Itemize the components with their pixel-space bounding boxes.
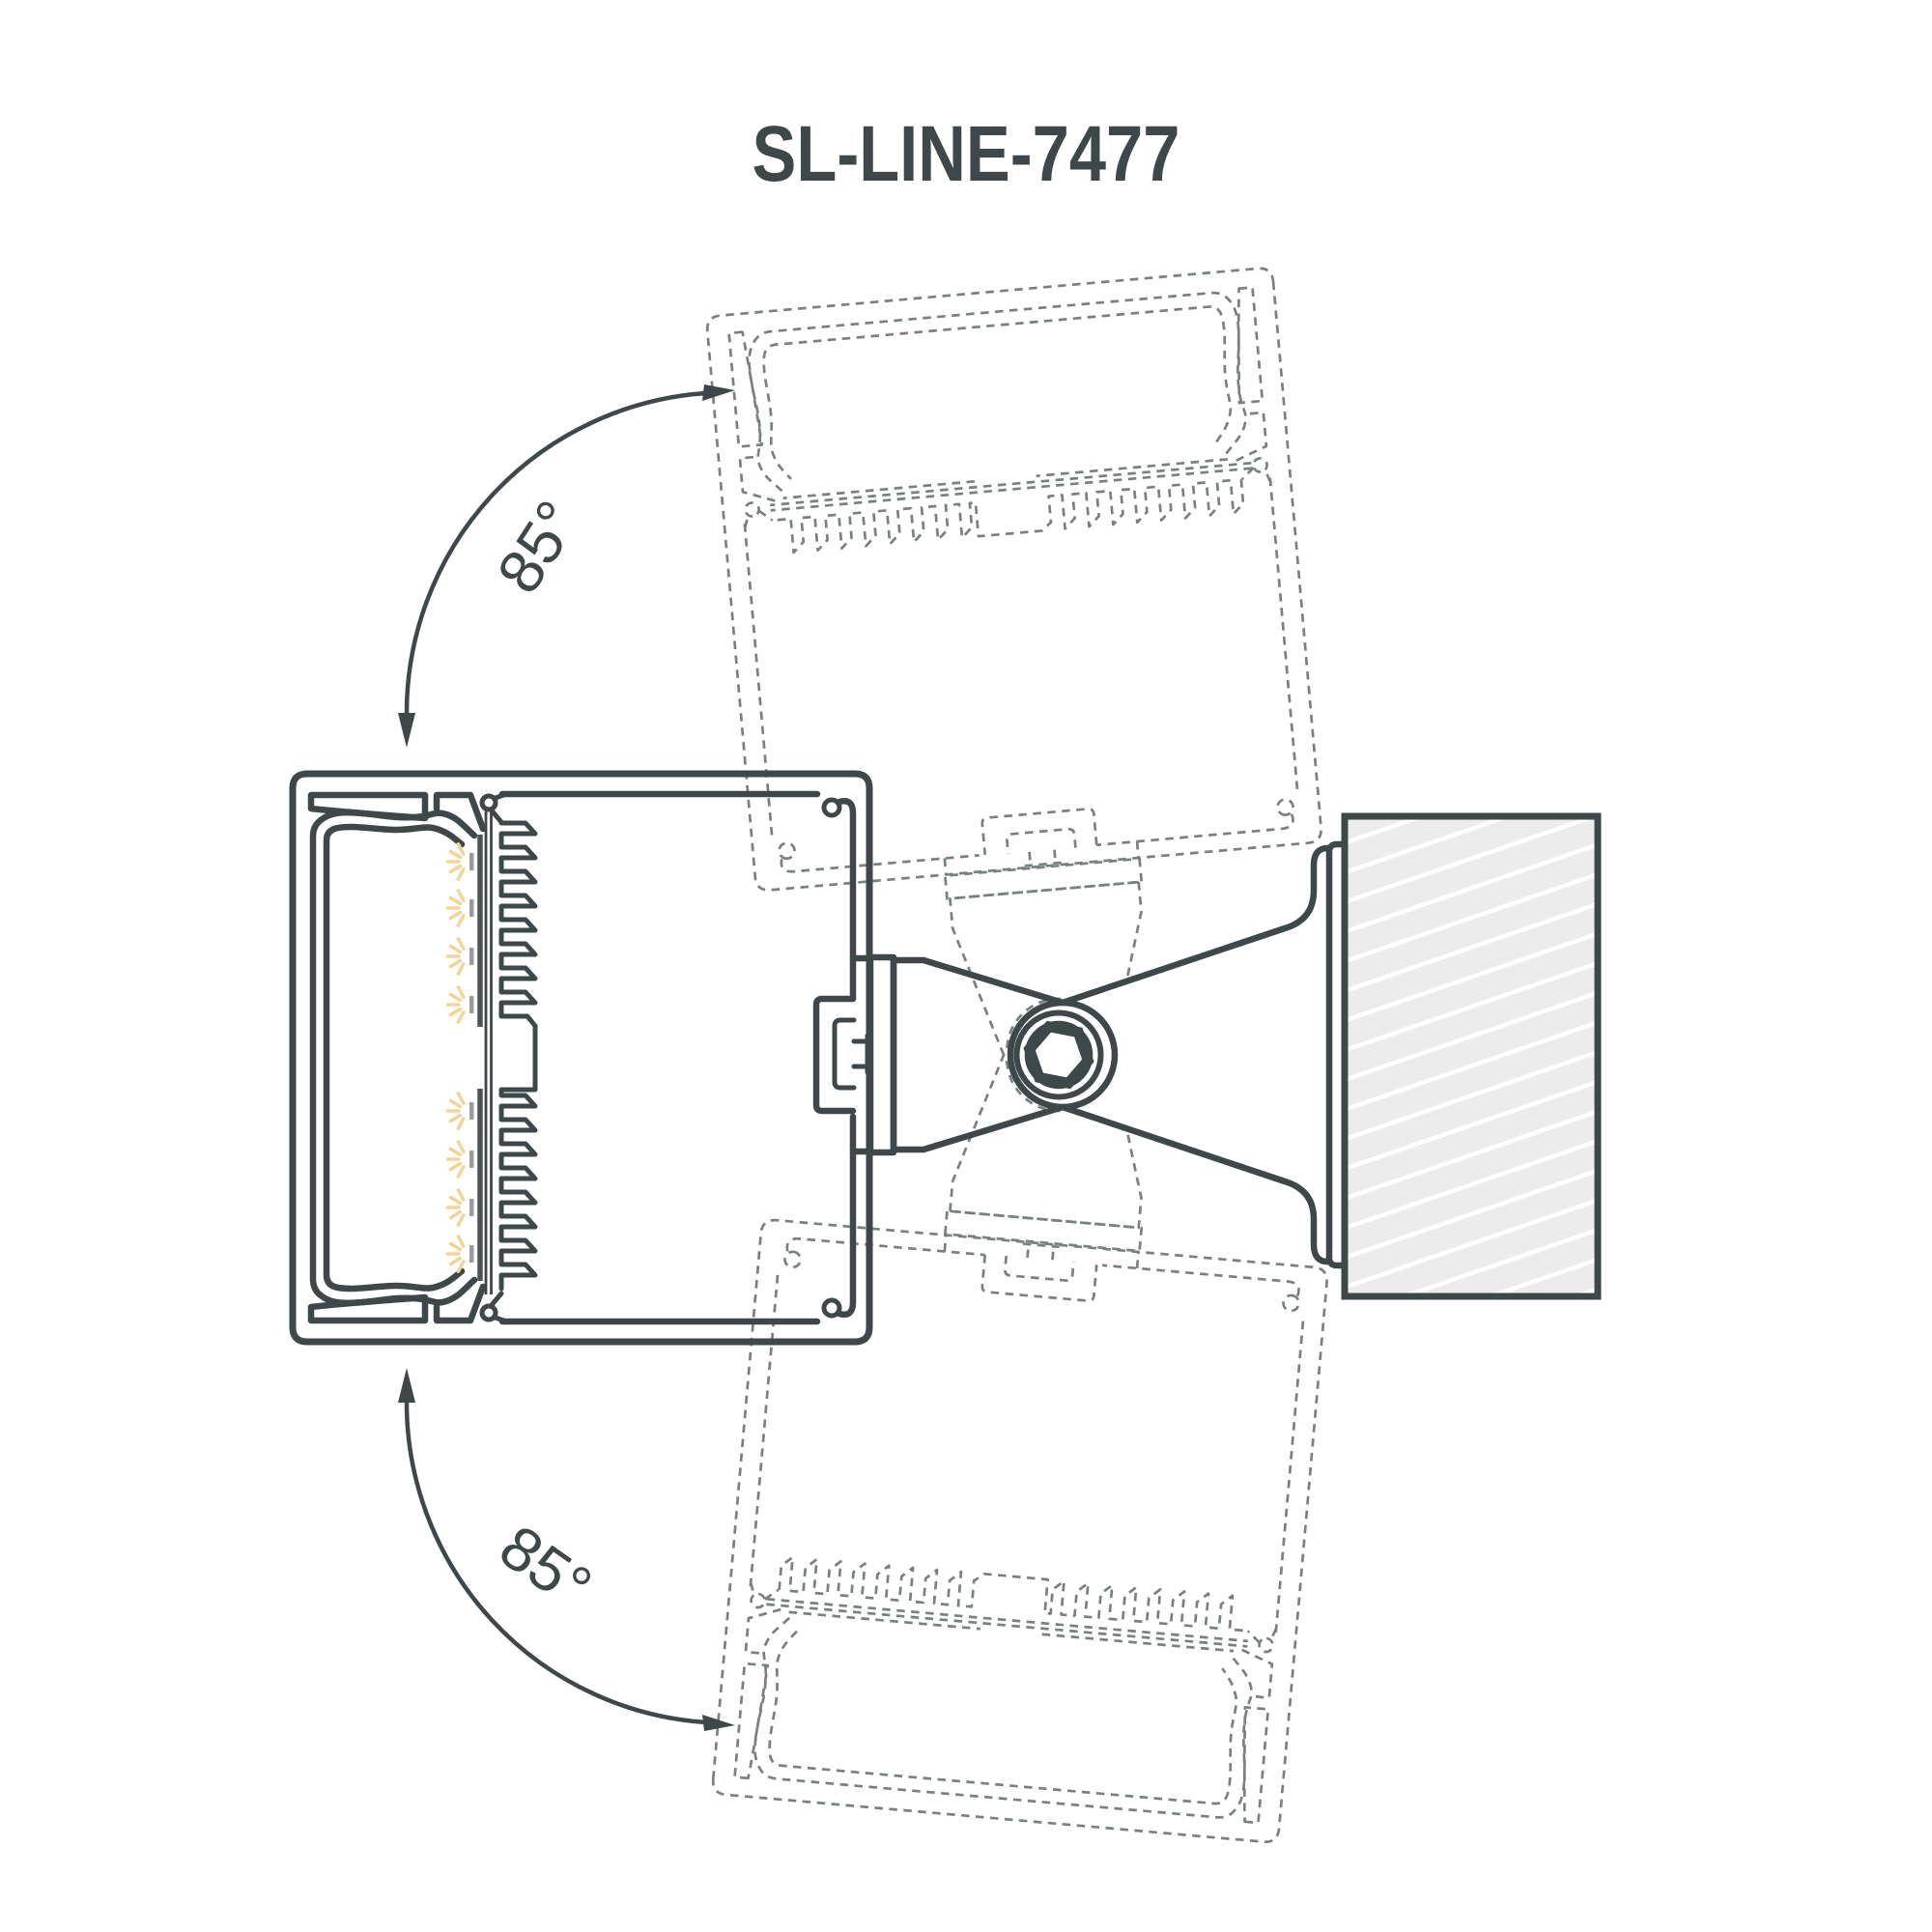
svg-text:85°: 85° — [488, 1512, 605, 1622]
svg-text:SL-LINE-7477: SL-LINE-7477 — [753, 110, 1180, 198]
svg-text:85°: 85° — [483, 489, 592, 605]
